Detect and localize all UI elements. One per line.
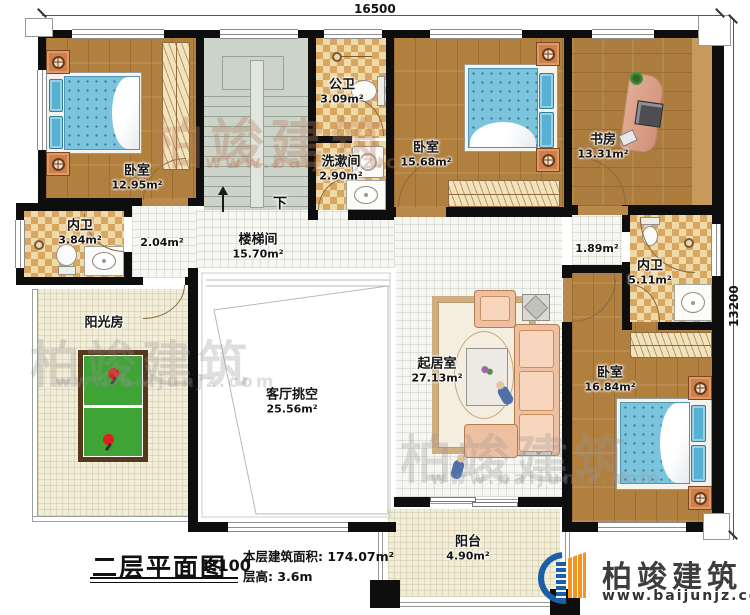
nightstand-lamp-icon: [52, 56, 65, 69]
sink-basin: [92, 252, 116, 270]
dimension-label-right: 13200: [727, 287, 741, 327]
room-name: 起居室: [411, 358, 462, 373]
room-area: 4.90m²: [446, 550, 489, 562]
title-underline: [90, 582, 238, 583]
wall: [394, 497, 430, 507]
window: [598, 522, 686, 532]
wall: [628, 205, 712, 215]
balcony-column: [370, 580, 400, 608]
room-area: 3.84m²: [58, 234, 101, 246]
wardrobe: [162, 42, 190, 170]
down-text: 下: [273, 196, 287, 212]
bed-pillow: [49, 79, 63, 112]
wall: [316, 136, 352, 143]
wall: [386, 30, 394, 217]
room-name: 内卫: [628, 260, 671, 275]
door-threshold: [396, 208, 446, 217]
room-area: 12.95m²: [111, 179, 162, 191]
sofa-cushion: [519, 414, 554, 452]
nightstand-lamp-icon: [542, 48, 555, 61]
room-area: 13.31m²: [577, 148, 628, 160]
dimension-line-right: [733, 20, 734, 540]
nightstand: [688, 376, 712, 400]
faucet-line: [340, 56, 372, 57]
nightstand-lamp-icon: [52, 158, 65, 171]
room-area: 15.70m²: [232, 248, 283, 260]
wall: [124, 252, 132, 285]
nightstand: [536, 148, 560, 172]
room-label-bedroom-tl: 卧室 12.95m²: [111, 165, 162, 192]
wall: [562, 265, 572, 278]
window: [711, 224, 721, 276]
title-underline: [90, 577, 238, 579]
ping-pong-net: [83, 405, 143, 408]
room-area: 27.13m²: [411, 372, 462, 384]
nightstand: [46, 152, 70, 176]
wall: [446, 207, 572, 217]
room-label-bath-r: 内卫 5.11m²: [628, 260, 671, 287]
hall-left-area-label: 2.04m²: [140, 237, 183, 249]
study-side-strip: [692, 38, 712, 206]
nightstand: [536, 42, 560, 66]
room-area: 5.11m²: [628, 274, 671, 286]
sunroom-glass-wall: [32, 516, 192, 522]
room-name: 卧室: [400, 142, 451, 157]
nightstand-lamp-icon: [694, 382, 707, 395]
window: [220, 29, 298, 39]
room-name: 阳台: [446, 536, 489, 551]
ping-pong-table: [78, 350, 148, 462]
bed-pillow: [691, 445, 706, 482]
bed-blanket-fold: [660, 403, 689, 483]
sunroom-glass-wall: [32, 289, 38, 522]
wall: [712, 30, 724, 532]
lamp-icon: [34, 240, 44, 250]
room-name: 书房: [577, 134, 628, 149]
floor-height-text: 层高: 3.6m: [243, 566, 313, 585]
room-label-void: 客厅挑空 25.56m²: [266, 389, 318, 416]
bed-pillow: [539, 112, 554, 148]
wall: [348, 210, 394, 220]
dimension-label-top: 16500: [354, 2, 396, 16]
bed-blanket-fold: [112, 77, 139, 149]
room-name: 阳光房: [84, 317, 123, 332]
door-threshold: [142, 199, 188, 206]
window: [228, 522, 348, 532]
wall: [622, 322, 632, 330]
toilet-tank: [377, 76, 385, 106]
room-name: 客厅挑空: [266, 389, 318, 404]
room-area: 15.68m²: [400, 156, 451, 168]
bed-pillow: [539, 73, 554, 109]
hall-right-area-label: 1.89m²: [575, 243, 618, 255]
room-name: 洗漱间: [319, 156, 362, 171]
floor-area-text: 本层建筑面积: 174.07m²: [243, 546, 394, 565]
room-label-stairwell: 楼梯间 15.70m²: [232, 234, 283, 261]
toilet-tank: [58, 266, 76, 275]
window: [37, 70, 47, 150]
ping-pong-paddle: [108, 368, 119, 379]
bed-pillow: [49, 116, 63, 149]
window: [72, 29, 164, 39]
room-area: 16.84m²: [584, 381, 635, 393]
stair-direction-arrow: [222, 190, 224, 212]
bed-pillow: [691, 405, 706, 442]
side-table: [522, 294, 550, 321]
wall: [124, 203, 132, 217]
sliding-door: [430, 497, 476, 502]
wall: [564, 30, 572, 215]
sliding-door: [472, 502, 518, 507]
wall: [196, 30, 204, 206]
plant: [630, 72, 643, 85]
room-label-bedroom-tm: 卧室 15.68m²: [400, 142, 451, 169]
room-name: 公卫: [320, 79, 363, 94]
room-name: 楼梯间: [232, 234, 283, 249]
room-label-bedroom-br: 卧室 16.84m²: [584, 367, 635, 394]
brand-url: www.baijunjz.com: [602, 588, 750, 604]
axis-corner-marker: [25, 18, 53, 37]
ping-pong-paddle: [103, 434, 114, 445]
room-name: 内卫: [58, 220, 101, 235]
dimension-tick: [37, 8, 47, 18]
room-name: 卧室: [111, 165, 162, 180]
room-label-study: 书房 13.31m²: [577, 134, 628, 161]
room-label-balcony: 阳台 4.90m²: [446, 536, 489, 563]
room-label-public-bath: 公卫 3.09m²: [320, 79, 363, 106]
stair-down-label: 下: [273, 197, 287, 213]
room-label-sunroom: 阳光房: [84, 317, 123, 332]
wardrobe: [448, 180, 560, 207]
floor-plan-canvas: 卧室 12.95m² 楼梯间 15.70m² 下 公卫 3.09m² 洗漱间 2…: [0, 0, 750, 615]
sofa-cushion: [519, 330, 554, 368]
room-area: 3.09m²: [320, 93, 363, 105]
stair-rail: [250, 60, 264, 208]
hall-right-floor: [572, 215, 622, 265]
chaise: [464, 424, 518, 458]
brand-logo-tower-icon: [568, 552, 586, 598]
wardrobe: [630, 332, 712, 358]
axis-corner-marker: [698, 15, 731, 46]
brand-logo-tower-icon: [556, 562, 566, 598]
axis-corner-marker: [703, 513, 730, 540]
door-threshold: [578, 206, 628, 215]
door-threshold: [563, 278, 572, 322]
wall: [308, 30, 316, 220]
wall: [658, 322, 712, 330]
wall: [308, 210, 318, 220]
wall: [188, 268, 198, 532]
room-label-washroom: 洗漱间 2.90m²: [319, 156, 362, 183]
computer-monitor: [634, 100, 663, 127]
wall: [562, 265, 630, 273]
room-label-bath-l: 内卫 3.84m²: [58, 220, 101, 247]
room-area: 25.56m²: [266, 403, 318, 415]
room-area: 1.89m²: [575, 243, 618, 255]
window: [15, 220, 25, 268]
wall: [562, 322, 572, 532]
wall: [518, 497, 562, 507]
nightstand-lamp-icon: [542, 154, 555, 167]
sofa-cushion: [519, 371, 554, 411]
room-area: 2.04m²: [140, 237, 183, 249]
room-name: 卧室: [584, 367, 635, 382]
toilet: [56, 244, 77, 266]
room-label-living: 起居室 27.13m²: [411, 358, 462, 385]
faucet-icon: [332, 52, 342, 62]
window: [430, 29, 522, 39]
window: [324, 29, 382, 39]
sink-basin: [681, 292, 705, 313]
nightstand: [46, 50, 70, 74]
nightstand: [688, 486, 712, 510]
room-area: 2.90m²: [319, 170, 362, 182]
window: [592, 29, 654, 39]
sink-basin: [354, 186, 378, 204]
nightstand-lamp-icon: [694, 492, 707, 505]
armchair-cushion: [480, 296, 510, 321]
